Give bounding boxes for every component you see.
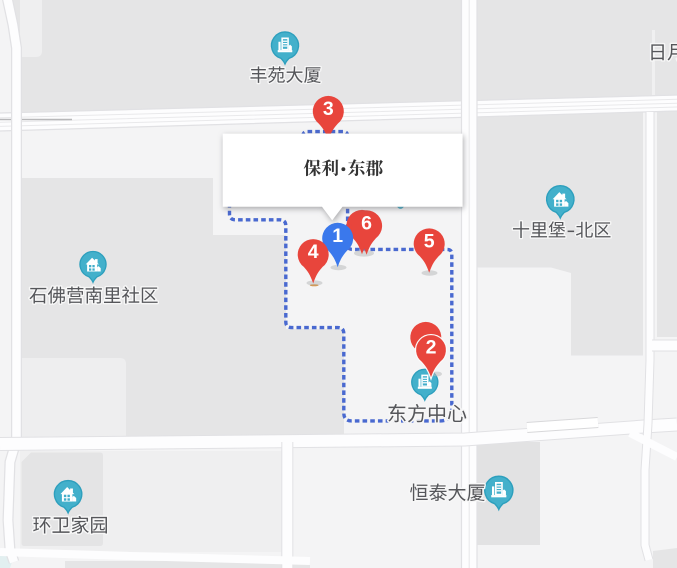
svg-text:4: 4	[308, 241, 319, 263]
svg-text:3: 3	[323, 98, 334, 120]
svg-text:5: 5	[424, 231, 435, 253]
svg-text:1: 1	[332, 225, 343, 247]
svg-text:2: 2	[426, 337, 437, 359]
svg-text:6: 6	[361, 212, 372, 234]
